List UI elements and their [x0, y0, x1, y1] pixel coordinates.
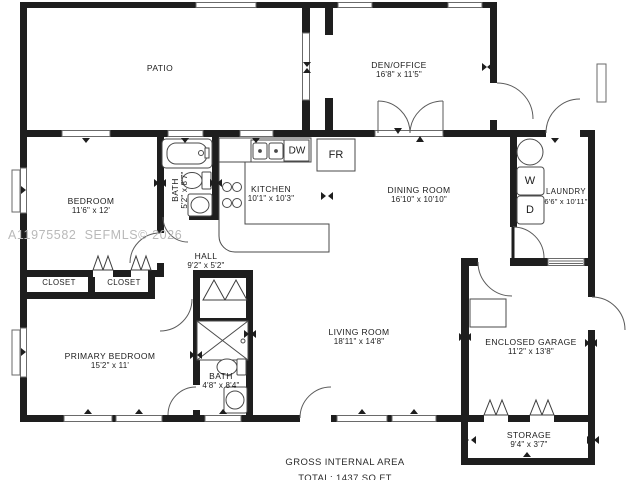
- garage-exterior-door: [592, 297, 625, 330]
- floor-plan: PATIO DEN/OFFICE 16'8" x 11'5" BEDROOM 1…: [0, 0, 640, 480]
- den-french-door-left: [378, 101, 410, 133]
- toilet-icon-primary-bath: [217, 359, 246, 375]
- sink-icon-primary-bath: [224, 387, 247, 413]
- sink-icon-top-bath: [188, 194, 212, 216]
- shower-icon: [197, 321, 248, 360]
- laundry-exterior-door: [546, 99, 580, 133]
- windows: [21, 3, 585, 422]
- floor-plan-drawing: [0, 0, 640, 480]
- kitchen-sink-icon: [251, 140, 284, 162]
- garage-entry-door: [478, 262, 512, 296]
- refrigerator-icon: [317, 139, 355, 171]
- bathtub-icon: [162, 139, 212, 168]
- utility-sink-icon: [517, 139, 543, 165]
- dryer-icon: [517, 196, 544, 224]
- primary-bedroom-door: [160, 299, 192, 331]
- washer-icon: [517, 167, 544, 195]
- bifold-doors: [93, 256, 554, 415]
- den-exterior-door: [497, 83, 533, 119]
- laundry-interior-door: [513, 227, 544, 258]
- dishwasher-icon: [284, 140, 309, 161]
- toilet-icon-top-bath: [182, 172, 211, 189]
- front-door: [300, 387, 331, 418]
- bath-top-door: [163, 217, 188, 242]
- dimension-markers: [154, 62, 599, 444]
- primary-bath-door: [168, 387, 196, 415]
- den-french-door-right: [410, 101, 443, 133]
- garage-workbench: [470, 299, 506, 327]
